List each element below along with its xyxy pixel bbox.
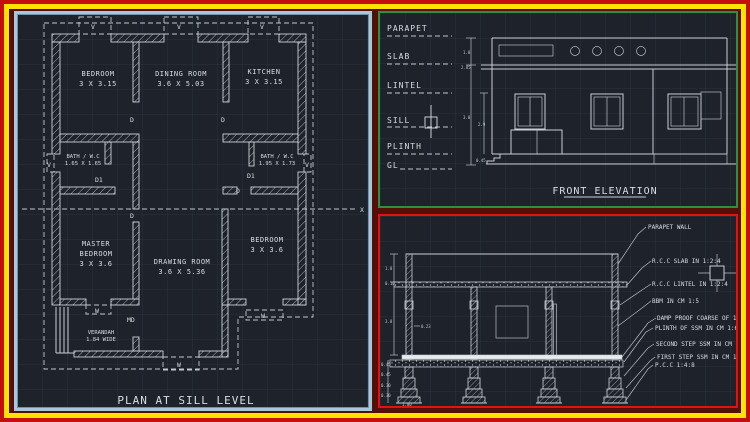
- room-drawing-name: DRAWING ROOM: [154, 258, 211, 266]
- room-bath2-dims: 1.95 X 1.73: [259, 161, 295, 167]
- room-drawing-dims: 3.6 X 5.36: [158, 268, 205, 276]
- room-verandah-name: VERANDAH: [88, 330, 115, 336]
- lintel-block: [470, 301, 478, 309]
- room-bath1-name: BATH / W.C: [66, 154, 99, 160]
- vent-marker: V: [260, 23, 264, 31]
- drawing-sheet: X: [0, 0, 750, 422]
- room-bath2-name: BATH / W.C: [260, 154, 293, 160]
- elevation-title: FRONT ELEVATION: [552, 186, 657, 197]
- door-marker: D: [130, 116, 134, 124]
- level-sill: SILL: [387, 116, 410, 125]
- main-door-marker: MD: [127, 316, 135, 324]
- room-bedroom1-dims: 3 X 3.15: [79, 80, 117, 88]
- dim-base-width: 1.00: [402, 402, 412, 406]
- axis-label-x: X: [360, 206, 364, 214]
- dim-wall-height: 3.8: [385, 319, 393, 324]
- level-labels: PARAPET SLAB LINTEL SILL PLINTH GL: [387, 24, 452, 170]
- window-marker: W: [261, 312, 265, 320]
- section-structure: [390, 254, 627, 367]
- dim-step3: 0.30: [381, 393, 391, 398]
- rcc-slab: [394, 282, 627, 287]
- callout-damp-proof: DAMP PROOF COARSE OF 1:4:8: [657, 315, 736, 322]
- sheet-inner: X: [4, 4, 746, 418]
- level-gl: GL: [387, 161, 399, 170]
- dim-plinth: 0.45: [381, 362, 391, 367]
- room-bedroom1-name: BEDROOM: [81, 70, 114, 78]
- door1-marker: D1: [95, 176, 103, 184]
- plan-title: PLAN AT SILL LEVEL: [117, 394, 254, 407]
- dim-parapet: 1.8: [385, 266, 393, 271]
- dim-window: 2.9: [478, 122, 486, 127]
- vent-marker: V: [305, 161, 309, 169]
- room-kitchen-name: KITCHEN: [247, 68, 280, 76]
- elevation-title-group: FRONT ELEVATION: [552, 186, 657, 197]
- section-window-opening: [496, 306, 528, 338]
- door1-marker: D1: [247, 172, 255, 180]
- window-marker: W: [177, 361, 181, 369]
- elevation-dimensions: 1.8 2.85 3.8 2.9 0.45: [461, 38, 488, 165]
- section-panel[interactable]: 1.8 0.10 3.8 0.23 0.45 0.45 0.30 0.30 1.…: [378, 214, 738, 408]
- ground-band: [390, 360, 623, 367]
- callout-parapet-wall: PARAPET WALL: [648, 224, 692, 231]
- elevation-windows: [511, 92, 721, 154]
- room-master-name1: MASTER: [82, 240, 111, 248]
- door-marker: D: [221, 116, 225, 124]
- callout-rcc-slab: R.C.C SLAB IN 1:2:4: [652, 258, 721, 265]
- room-bedroom2-name: BEDROOM: [250, 236, 283, 244]
- lintel-block: [545, 301, 553, 309]
- callout-second-step: SECOND STEP SSM IN CM 1:6: [656, 341, 736, 348]
- dim-step2: 0.30: [381, 383, 391, 388]
- level-lintel: LINTEL: [387, 81, 422, 90]
- plinth-band: [402, 355, 622, 359]
- level-parapet: PARAPET: [387, 24, 428, 33]
- dim-slab: 0.10: [385, 281, 395, 286]
- verandah-steps: [56, 307, 74, 353]
- elevation-building: [481, 38, 736, 154]
- dim-slab: 2.85: [461, 65, 471, 70]
- elevation-base: [486, 154, 736, 164]
- lintel-block: [611, 301, 619, 309]
- callout-pcc: P.C.C 1:4:8: [655, 362, 695, 369]
- floor-plan-drawing: X: [17, 14, 369, 408]
- footings: [396, 367, 628, 403]
- dim-floor: 3.8: [463, 115, 471, 120]
- front-elevation-drawing: PARAPET SLAB LINTEL SILL PLINTH GL 1.8 2…: [380, 13, 736, 206]
- room-dining-dims: 3.6 X 5.03: [157, 80, 204, 88]
- level-slab: SLAB: [387, 52, 410, 61]
- door-marker: D: [236, 187, 240, 195]
- dim-parapet: 1.8: [463, 50, 471, 55]
- room-master-dims: 3 X 3.6: [79, 260, 112, 268]
- floor-plan-panel[interactable]: X: [14, 11, 372, 411]
- room-labels: BEDROOM 3 X 3.15 DINING ROOM 3.6 X 5.03 …: [65, 68, 295, 343]
- room-bath1-dims: 1.65 X 1.65: [65, 161, 101, 167]
- vent-marker: V: [47, 161, 51, 169]
- room-verandah-dims: 1.84 WIDE: [86, 337, 116, 343]
- room-master-name2: BEDROOM: [79, 250, 112, 258]
- callout-plinth-ssm: PLINTH OF SSM IN CM 1:6: [655, 325, 736, 332]
- sill-symbol: [425, 105, 437, 138]
- room-bedroom2-dims: 3 X 3.6: [250, 246, 283, 254]
- room-dining-name: DINING ROOM: [155, 70, 207, 78]
- level-plinth: PLINTH: [387, 142, 422, 151]
- dim-plinth: 0.45: [476, 158, 486, 163]
- dim-step1: 0.45: [381, 372, 391, 377]
- door-marker: D: [130, 212, 134, 220]
- section-drawing: 1.8 0.10 3.8 0.23 0.45 0.45 0.30 0.30 1.…: [380, 216, 736, 406]
- lintel-block: [405, 301, 413, 309]
- window-marker: W: [95, 307, 99, 315]
- section-callouts: PARAPET WALL R.C.C SLAB IN 1:2:4 R.C.C L…: [618, 224, 736, 400]
- dim-wall-thk: 0.23: [421, 324, 431, 329]
- vent-marker: V: [177, 23, 181, 31]
- callout-bbm: BBM IN CM 1:5: [652, 298, 699, 305]
- room-kitchen-dims: 3 X 3.15: [245, 78, 283, 86]
- front-elevation-panel[interactable]: PARAPET SLAB LINTEL SILL PLINTH GL 1.8 2…: [378, 11, 738, 208]
- callout-first-step: FIRST STEP SSM IN CM 1:6: [657, 354, 736, 361]
- vent-marker: V: [91, 23, 95, 31]
